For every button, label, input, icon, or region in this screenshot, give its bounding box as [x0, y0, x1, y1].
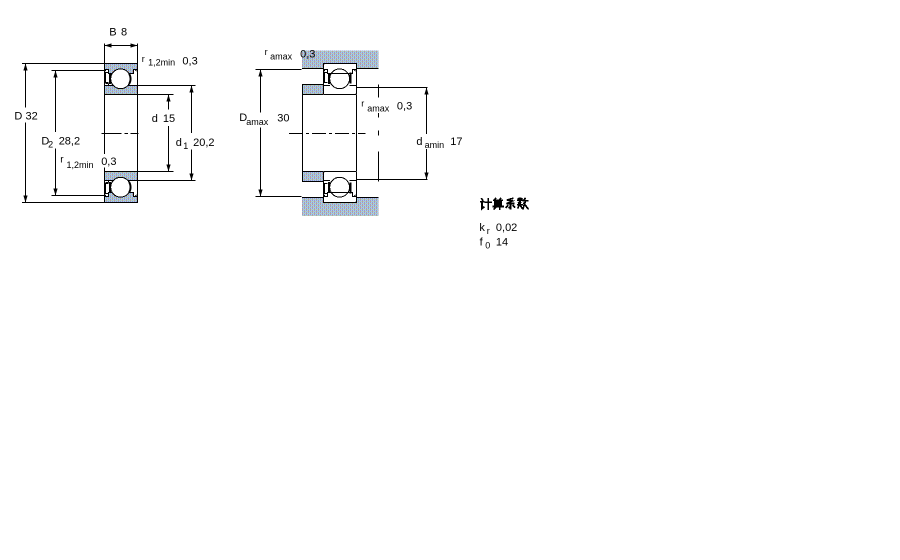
svg-text:0: 0 — [485, 240, 490, 250]
svg-text:8: 8 — [121, 27, 127, 39]
svg-text:k: k — [479, 222, 485, 234]
svg-text:0,3: 0,3 — [397, 101, 412, 113]
svg-text:r: r — [142, 54, 145, 64]
svg-text:d: d — [176, 137, 182, 149]
svg-text:0,3: 0,3 — [182, 56, 197, 68]
svg-text:15: 15 — [163, 113, 175, 125]
svg-text:20,2: 20,2 — [193, 137, 214, 149]
svg-text:0,02: 0,02 — [496, 222, 517, 234]
svg-text:r: r — [487, 226, 490, 236]
svg-text:2: 2 — [48, 140, 53, 150]
svg-text:B: B — [109, 27, 116, 39]
svg-text:r: r — [361, 98, 364, 108]
svg-text:amin: amin — [425, 140, 445, 150]
svg-text:amax: amax — [246, 117, 269, 127]
svg-text:0,3: 0,3 — [300, 48, 315, 60]
svg-text:14: 14 — [496, 236, 508, 248]
svg-text:amax: amax — [270, 52, 293, 62]
svg-text:1,2min: 1,2min — [67, 160, 94, 170]
svg-text:28,2: 28,2 — [59, 136, 80, 148]
svg-text:0,3: 0,3 — [101, 156, 116, 168]
svg-text:30: 30 — [277, 113, 289, 125]
svg-text:32: 32 — [26, 111, 38, 123]
svg-text:1: 1 — [183, 141, 188, 151]
svg-text:d: d — [416, 136, 422, 148]
svg-text:D: D — [14, 111, 22, 123]
svg-text:amax: amax — [367, 103, 390, 113]
svg-text:17: 17 — [450, 136, 462, 148]
svg-text:1,2min: 1,2min — [148, 58, 175, 68]
svg-text:r: r — [265, 47, 268, 57]
svg-text:d: d — [152, 113, 158, 125]
